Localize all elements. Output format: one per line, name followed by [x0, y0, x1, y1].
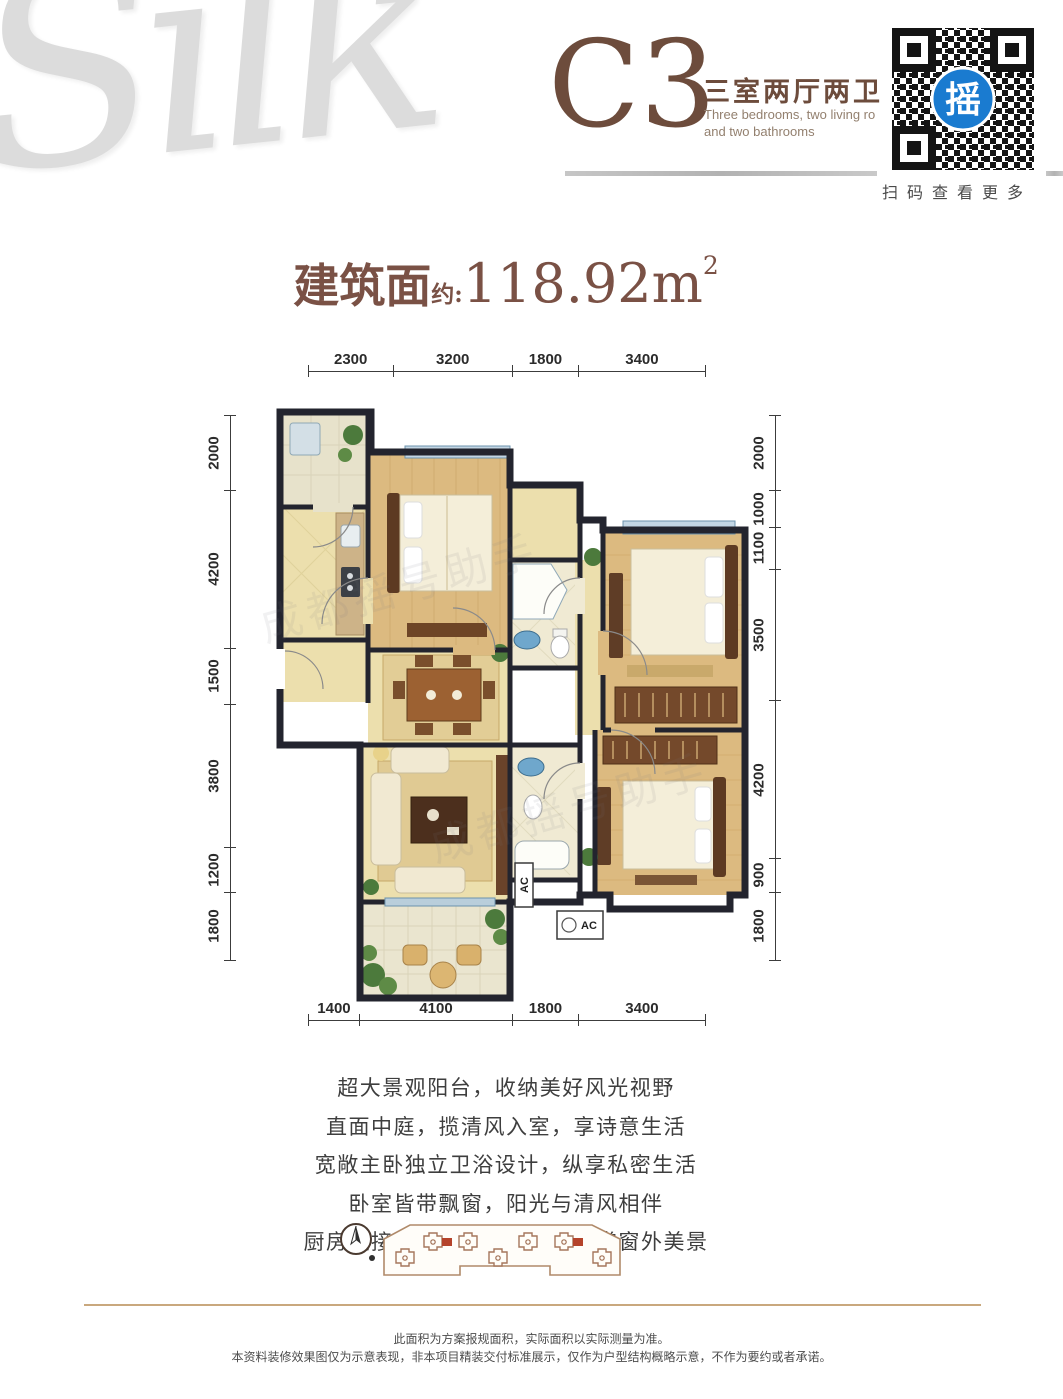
plant	[485, 909, 505, 929]
unit-type-chinese: 三室两厅两卫	[703, 70, 883, 109]
chair	[457, 945, 481, 965]
area-value: 118.92	[463, 252, 652, 315]
footer-rule	[84, 1304, 981, 1306]
wardrobe	[615, 687, 737, 723]
unit-type-english-line1: Three bedrooms, two living ro	[704, 106, 875, 123]
selling-point-line: 卧室皆带飘窗，阳光与清风相伴	[0, 1186, 1012, 1225]
ac-label: AC	[581, 920, 597, 932]
rug	[627, 665, 713, 677]
sliding-door	[385, 898, 495, 906]
room-bedroom-2	[368, 446, 510, 650]
room-dining	[368, 644, 510, 745]
site-building	[489, 1249, 507, 1266]
coffee-table	[411, 797, 467, 843]
site-building	[424, 1233, 442, 1250]
sofa	[395, 867, 465, 893]
toilet	[524, 795, 542, 819]
bed-headboard	[713, 777, 726, 877]
room-kitchen	[283, 507, 368, 640]
plant	[338, 448, 352, 462]
room-entry	[283, 640, 368, 702]
ac-label: AC	[519, 877, 531, 893]
dresser	[609, 573, 623, 658]
chair	[403, 945, 427, 965]
qr-finder-bottom-left	[892, 126, 936, 170]
plant	[379, 977, 397, 995]
floorplan-region: 2300 3200 1800 3400 1400 4100 1800 3400 …	[195, 335, 815, 1065]
header-divider-right	[1046, 171, 1063, 176]
sofa	[391, 747, 449, 773]
site-building	[459, 1233, 477, 1250]
sink	[518, 758, 544, 776]
cooktop	[341, 567, 360, 597]
qr-finder-top-left	[892, 28, 936, 72]
plant	[343, 425, 363, 445]
wardrobe	[603, 736, 717, 764]
room-living	[360, 745, 510, 902]
site-building	[593, 1249, 611, 1266]
area-label: 建筑面	[293, 259, 431, 313]
plant	[363, 879, 379, 895]
dresser	[597, 787, 611, 865]
tv-cabinet	[496, 755, 509, 895]
footer-disclaimer-line2: 本资料装修效果图仅为示意表现，非本项目精装交付标准展示，仅作为户型结构概略示意，…	[0, 1348, 1063, 1365]
site-plan	[380, 1220, 626, 1284]
room-balcony	[360, 902, 510, 998]
washing-machine	[290, 423, 320, 455]
qr-code: 摇	[888, 24, 1038, 174]
building-area-title: 建筑面约:118.92m2	[0, 250, 1012, 316]
unit-type-english-line2: and two bathrooms	[704, 123, 875, 140]
area-unit: m	[652, 252, 703, 315]
floorplan-flyer-page: { "logo": { "text": "Silk" }, "header": …	[0, 0, 1063, 1399]
qr-finder-top-right	[990, 28, 1034, 72]
bed-headboard	[725, 545, 738, 659]
site-building	[396, 1249, 414, 1266]
bed-bench	[635, 875, 697, 885]
kitchen-sink	[341, 525, 360, 547]
area-approx: 约:	[431, 281, 463, 308]
qr-center-glyph: 摇	[945, 79, 981, 120]
room-master-bedroom	[580, 730, 745, 895]
bed-headboard	[387, 493, 400, 593]
qr-caption: 扫码查看更多	[882, 179, 1052, 203]
site-building	[519, 1233, 537, 1250]
footer-disclaimer-line1: 此面积为方案报规面积，实际面积以实际测量为准。	[0, 1330, 1063, 1347]
room-service-balcony	[283, 415, 368, 507]
dresser	[407, 623, 487, 637]
room-master-bath	[510, 745, 580, 880]
table	[430, 962, 456, 988]
compass	[334, 1216, 380, 1268]
toilet	[551, 636, 569, 658]
header-divider-left	[565, 171, 877, 176]
silk-logo: Silk	[0, 0, 441, 213]
unit-code: C3	[548, 26, 716, 146]
selling-point-line: 宽敞主卧独立卫浴设计，纵享私密生活	[0, 1147, 1012, 1186]
site-building	[555, 1233, 573, 1250]
floorplan-drawing: AC AC	[195, 335, 815, 1065]
plant	[584, 548, 602, 566]
sofa	[371, 773, 401, 865]
room-bath-2	[510, 560, 580, 668]
sink	[514, 631, 540, 649]
dining-table	[407, 669, 481, 721]
selling-point-line: 直面中庭，揽清风入室，享诗意生活	[0, 1109, 1012, 1148]
selling-point-line: 超大景观阳台，收纳美好风光视野	[0, 1070, 1012, 1109]
area-superscript: 2	[703, 251, 719, 280]
unit-type-english: Three bedrooms, two living ro and two ba…	[704, 106, 875, 140]
unit-location-marker	[573, 1238, 583, 1246]
room-bedroom-3	[584, 521, 745, 730]
unit-location-marker	[442, 1238, 452, 1246]
